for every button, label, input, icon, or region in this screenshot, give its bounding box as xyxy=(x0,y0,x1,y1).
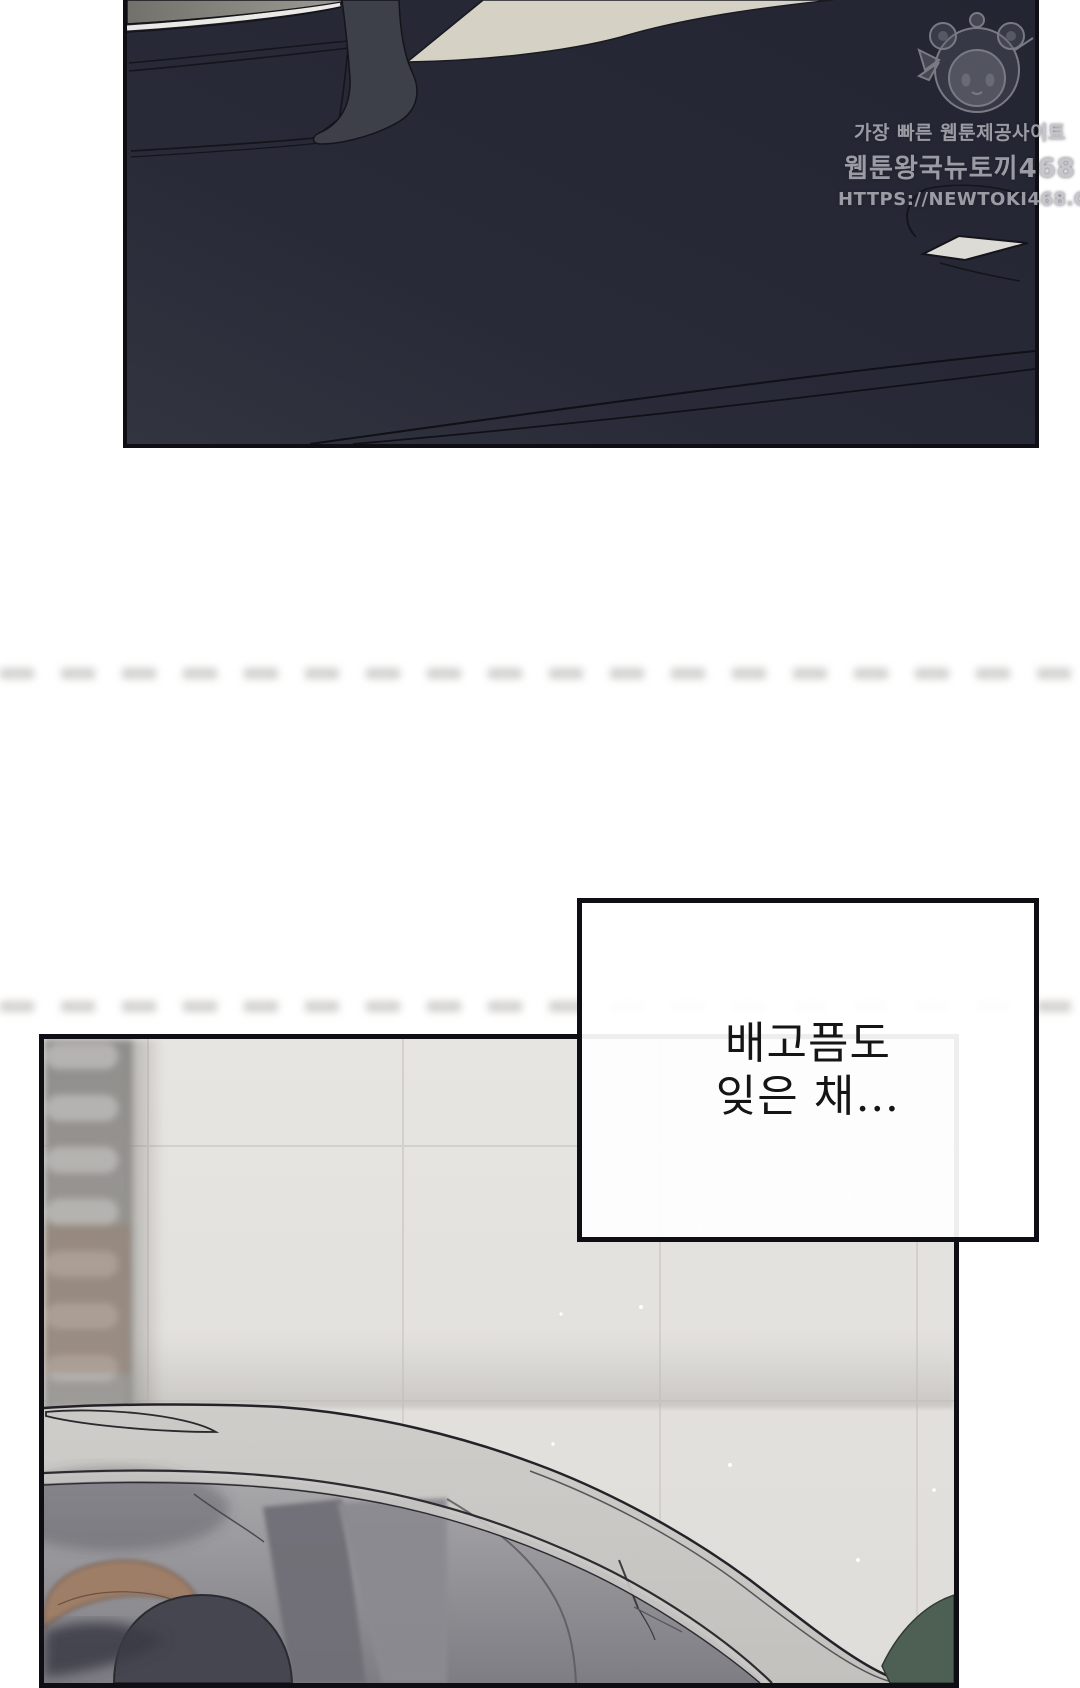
narration-box: 배고픔도 잊은 채… xyxy=(577,898,1039,1242)
narration-line-2: 잊은 채… xyxy=(716,1070,900,1123)
car-body-navy xyxy=(127,0,1035,444)
shutter-brown-tint xyxy=(44,1224,132,1374)
faint-watermark-smudge-row-1 xyxy=(0,668,1080,679)
window-shutter xyxy=(44,1039,164,1433)
panel-car-side-closeup xyxy=(123,0,1039,448)
car-side-art xyxy=(127,0,1035,444)
narration-line-1: 배고픔도 xyxy=(725,1017,891,1070)
wall-shadow xyxy=(44,1334,954,1408)
comic-page: 배고픔도 잊은 채… 가장 빠른 웹툰제공사이트 웹툰왕국뉴토끼468 xyxy=(0,0,1080,1688)
